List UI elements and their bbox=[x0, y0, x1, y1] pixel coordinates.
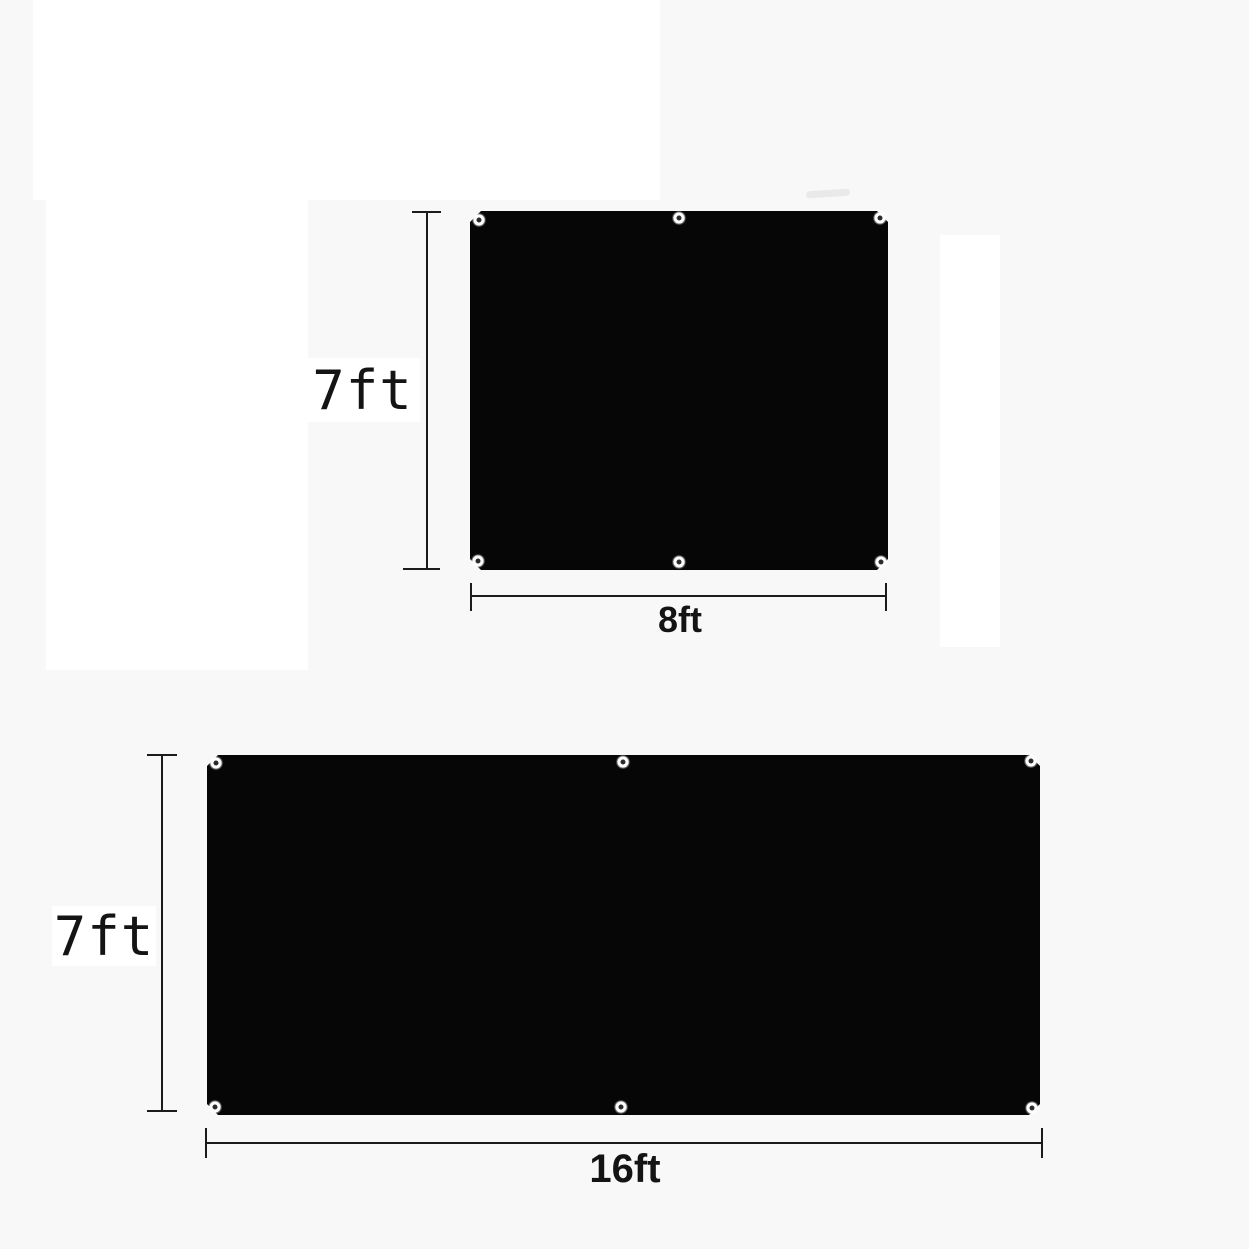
tarp-panel-8ft bbox=[470, 211, 888, 570]
panel-b-width-label: 16ft bbox=[545, 1146, 705, 1192]
width-dimension-line bbox=[470, 595, 887, 597]
grommet-icon bbox=[473, 556, 484, 567]
grommet-icon bbox=[674, 557, 685, 568]
background-patch-top bbox=[33, 0, 660, 200]
background-smudge bbox=[806, 188, 850, 198]
grommet-icon bbox=[618, 757, 629, 768]
dimension-end-cap bbox=[205, 1128, 207, 1158]
dimension-end-cap bbox=[1041, 1128, 1043, 1158]
grommet-icon bbox=[1026, 756, 1037, 767]
grommet-icon bbox=[876, 557, 887, 568]
grommet-icon bbox=[674, 213, 685, 224]
dimension-end-cap bbox=[412, 211, 441, 213]
panel-b-height-label: 7ft bbox=[52, 906, 156, 966]
dimension-end-cap bbox=[885, 583, 887, 611]
grommet-icon bbox=[474, 215, 485, 226]
background-patch-left bbox=[46, 198, 308, 670]
grommet-icon bbox=[1027, 1103, 1038, 1114]
dimension-end-cap bbox=[470, 583, 472, 611]
width-dimension-line bbox=[205, 1142, 1043, 1144]
panel-a-width-label: 8ft bbox=[620, 600, 740, 640]
grommet-icon bbox=[616, 1102, 627, 1113]
tarp-panel-16ft bbox=[207, 755, 1040, 1115]
dimension-end-cap bbox=[147, 754, 177, 756]
background-patch-right bbox=[940, 235, 1000, 647]
dimension-end-cap bbox=[147, 1110, 177, 1112]
dimension-end-cap bbox=[403, 568, 440, 570]
height-dimension-line bbox=[426, 212, 428, 570]
diagram-canvas: 7ft 8ft 7ft 16ft bbox=[0, 0, 1249, 1249]
panel-a-height-label: 7ft bbox=[305, 358, 420, 422]
height-dimension-line bbox=[161, 755, 163, 1112]
grommet-icon bbox=[210, 1102, 221, 1113]
grommet-icon bbox=[211, 758, 222, 769]
grommet-icon bbox=[875, 213, 886, 224]
